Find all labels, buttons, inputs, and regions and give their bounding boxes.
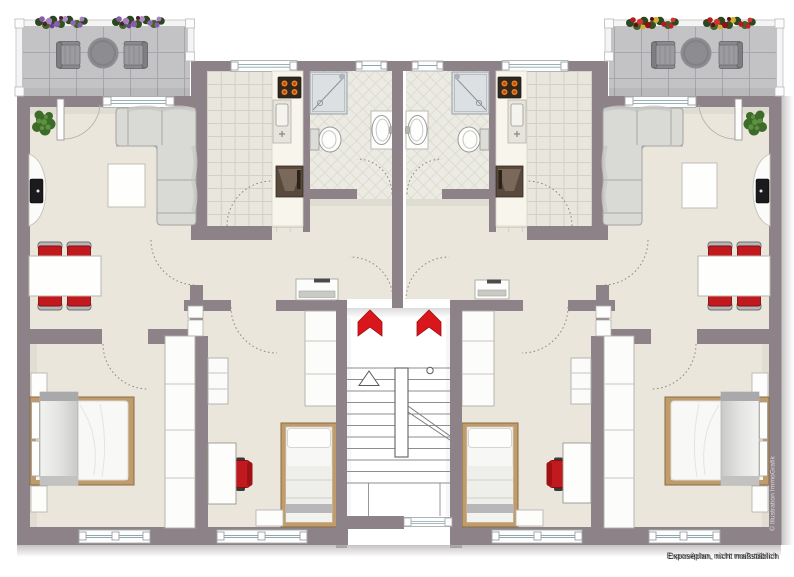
svg-text:© Illustration ImmoGrafik: © Illustration ImmoGrafik <box>769 456 777 531</box>
svg-text:Exposéplan, nicht maßstäblich: Exposéplan, nicht maßstäblich <box>666 552 777 561</box>
